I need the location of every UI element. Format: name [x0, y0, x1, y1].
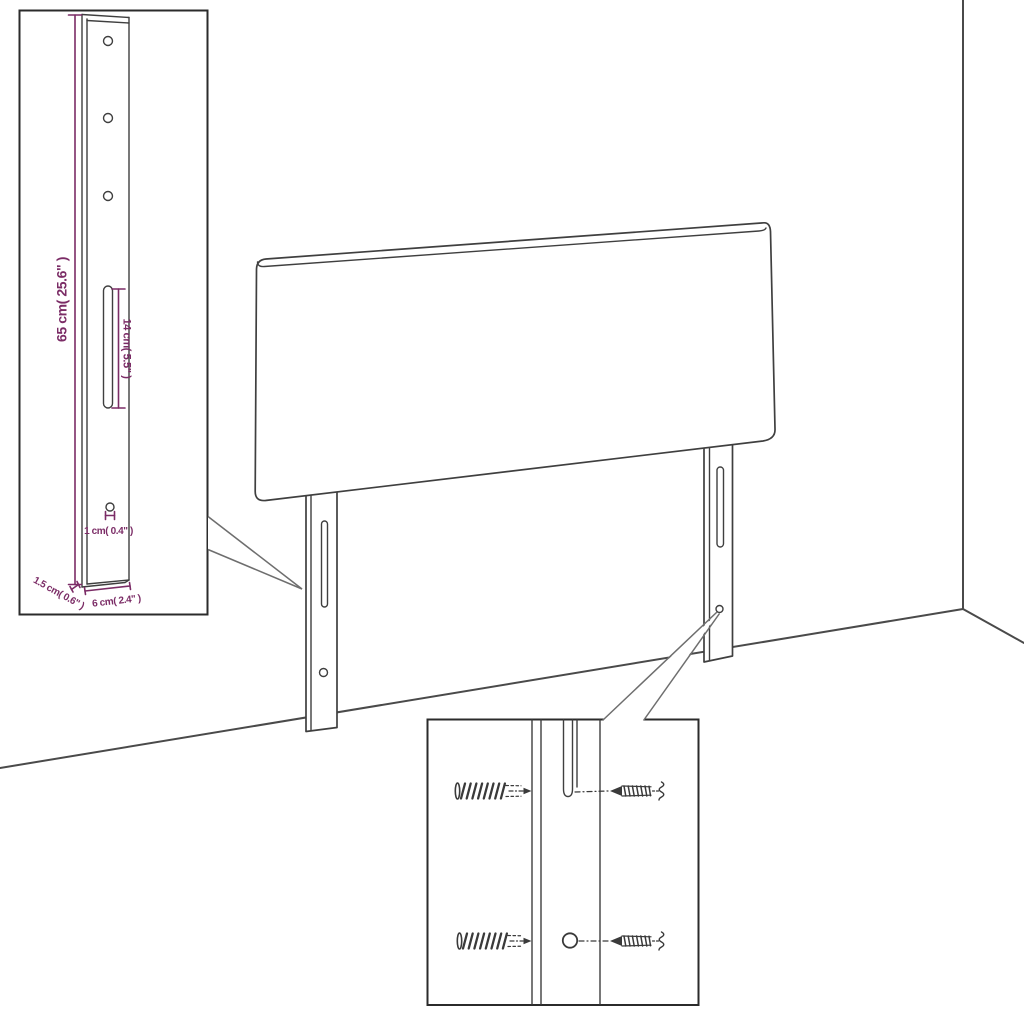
callout-line-right	[644, 614, 720, 721]
headboard-diagram: 65 cm( 25.6" ) 14 cm( 5.5" ) 1 cm( 0.4" …	[0, 0, 1024, 1024]
leg-dimension-inset: 65 cm( 25.6" ) 14 cm( 5.5" ) 1 cm( 0.4" …	[20, 11, 208, 615]
right-leg-slot-icon	[717, 467, 724, 547]
headboard-panel	[255, 223, 775, 501]
dimension-hole-label: 1 cm( 0.4" )	[84, 526, 133, 537]
dimension-tick	[85, 588, 86, 595]
callout-left	[208, 517, 302, 590]
dimension-tick	[130, 583, 131, 590]
left-leg-hole-icon	[320, 669, 328, 677]
leg-inset-frame	[20, 11, 208, 615]
hardware-detail-inset	[428, 720, 699, 1006]
headboard-outline	[255, 223, 775, 501]
right-leg-hole-icon	[716, 606, 723, 613]
dimension-slot-label: 14 cm( 5.5" )	[121, 319, 133, 380]
floor-line-right	[963, 609, 1024, 643]
left-leg-slot-icon	[322, 521, 328, 607]
dimension-height-label: 65 cm( 25.6" )	[54, 257, 70, 342]
left-mounting-leg	[306, 466, 337, 732]
diagram-page: 65 cm( 25.6" ) 14 cm( 5.5" ) 1 cm( 0.4" …	[0, 0, 1024, 1024]
